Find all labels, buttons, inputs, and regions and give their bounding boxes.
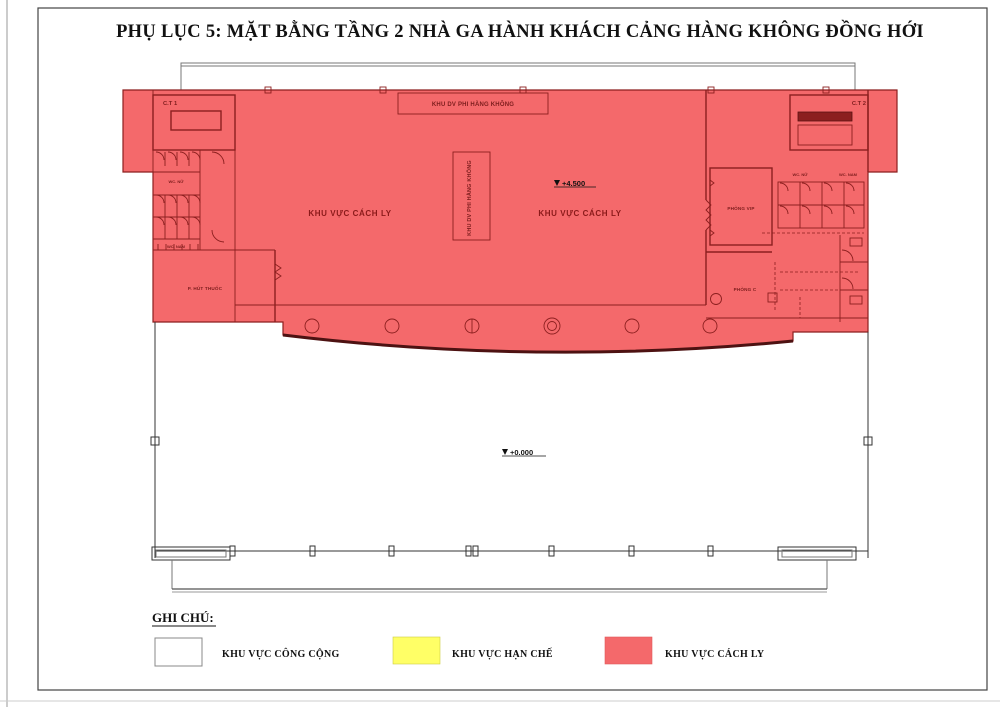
room-c-label: PHÒNG C (734, 285, 757, 292)
wc-male-left-label: WC. NAM (167, 244, 186, 249)
legend-swatch-public (155, 638, 202, 666)
wc-male-right-label: WC. NAM (839, 172, 858, 177)
isolation-left-label: KHU VỰC CÁCH LY (308, 209, 391, 218)
legend-item-public: KHU VỰC CÔNG CỘNG (155, 638, 340, 666)
roof-canopy-top (181, 63, 855, 91)
facade-end-block-right (778, 547, 856, 560)
legend-item-isolation: KHU VỰC CÁCH LY (605, 637, 765, 664)
legend-label-public: KHU VỰC CÔNG CỘNG (222, 647, 340, 660)
legend: GHI CHÚ: KHU VỰC CÔNG CỘNG KHU VỰC HẠN C… (152, 610, 765, 666)
isolation-area-shape (123, 90, 897, 352)
ct2-flight-bar (798, 112, 852, 121)
facade-end-block-left (152, 547, 230, 560)
legend-label-restricted: KHU VỰC HẠN CHẾ (452, 647, 553, 660)
smoking-room-label: P. HÚT THUỐC (188, 285, 223, 291)
non-aviation-top-label: KHU DV PHI HÀNG KHÔNG (432, 100, 514, 108)
vip-room-label: PHÒNG VIP (727, 204, 754, 211)
legend-heading: GHI CHÚ: (152, 610, 214, 625)
isolation-area (123, 87, 897, 352)
ct1-label: C.T 1 (163, 101, 178, 107)
roof-canopy-bottom (172, 560, 827, 592)
legend-item-restricted: KHU VỰC HẠN CHẾ (393, 637, 553, 664)
floor-plan-drawing: PHỤ LỤC 5: MẶT BẰNG TẦNG 2 NHÀ GA HÀNH K… (0, 0, 1000, 707)
isolation-right-label: KHU VỰC CÁCH LY (538, 209, 621, 218)
document-page: PHỤ LỤC 5: MẶT BẰNG TẦNG 2 NHÀ GA HÀNH K… (0, 0, 1000, 707)
page-title: PHỤ LỤC 5: MẶT BẰNG TẦNG 2 NHÀ GA HÀNH K… (116, 20, 924, 42)
public-area: +0.000 (151, 322, 872, 592)
ct2-label: C.T 2 (852, 101, 866, 107)
legend-swatch-isolation (605, 637, 652, 664)
non-aviation-vertical-label: KHU DV PHI HÀNG KHÔNG (465, 160, 473, 236)
legend-label-isolation: KHU VỰC CÁCH LY (665, 648, 765, 660)
bottom-facade-wall (152, 546, 868, 560)
wc-female-right-label: WC. NỮ (792, 172, 808, 177)
level-marker-0000: +0.000 (502, 448, 546, 457)
wc-female-left-label: WC. NỮ (168, 179, 184, 184)
legend-swatch-restricted (393, 637, 440, 664)
